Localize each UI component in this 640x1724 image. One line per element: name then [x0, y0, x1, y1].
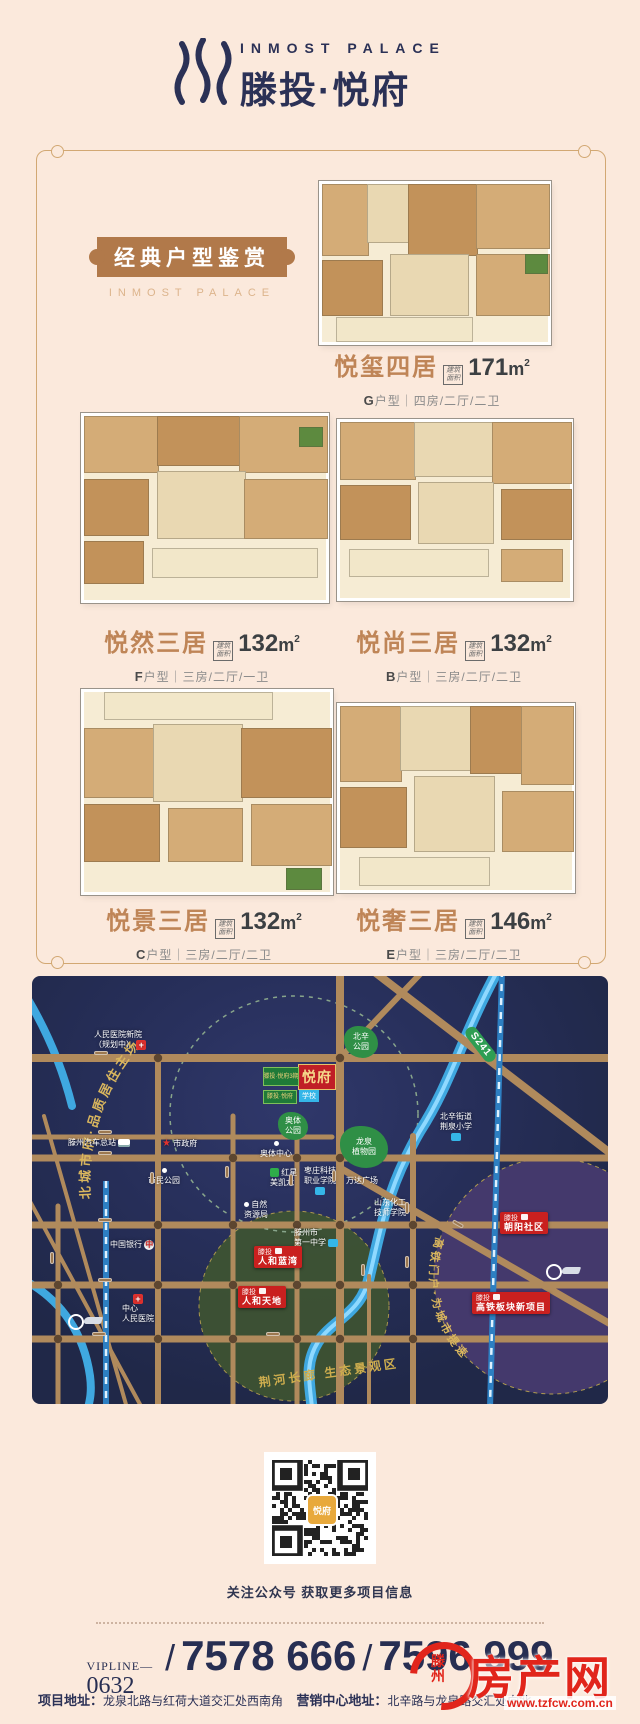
- plan-label-c: 悦景三居 建筑面积 132m2 C户型｜三房/二厅/二卫: [91, 901, 317, 963]
- plan-type: F户型｜三房/二厅/一卫: [89, 668, 315, 685]
- floorplan-room: [418, 482, 494, 544]
- floorplan-room: [340, 485, 411, 540]
- road-label-v-3: [289, 1174, 293, 1186]
- floorplan-room: [501, 549, 563, 583]
- floorplan-room: [414, 776, 495, 852]
- floorplan-room: [521, 706, 574, 785]
- road-label-v-2: [225, 1166, 229, 1178]
- floorplan-room: [152, 548, 319, 578]
- road-label-v-1: [150, 1172, 154, 1184]
- floorplan-room: [153, 724, 244, 802]
- plan-area: 132m2: [240, 908, 302, 936]
- road-label-v-7: [405, 1256, 409, 1268]
- floorplan-room: [359, 857, 491, 887]
- floorplan-image-e: [337, 703, 575, 893]
- slash: /: [356, 1637, 378, 1679]
- floorplan-room: [476, 184, 550, 249]
- plan-name: 悦尚三居: [356, 623, 460, 658]
- map-poi-13: +中心人民医院: [122, 1294, 154, 1324]
- plan-label-e: 悦奢三居 建筑面积 146m2 E户型｜三房/二厅/二卫: [341, 901, 567, 963]
- floorplan-room: [470, 706, 523, 774]
- floorplan-room: [501, 489, 572, 540]
- map-poi-0: 人民医院新院（规划中） +: [94, 1030, 146, 1050]
- footer-divider: [96, 1622, 544, 1624]
- watermark-url: www.tzfcw.com.cn: [504, 1696, 616, 1710]
- brand-logo-icon: [170, 38, 236, 108]
- section-badge: 经典户型鉴赏: [97, 237, 287, 277]
- brand-en: INMOST PALACE: [240, 40, 446, 56]
- watermark-city: 滕州: [430, 1654, 446, 1684]
- plan-area: 146m2: [490, 908, 552, 936]
- floorplan-section: 经典户型鉴赏 INMOST PALACE 悦玺四居 建筑面积 171m2 G户型…: [36, 150, 606, 964]
- floorplan-room: [322, 184, 369, 256]
- site-watermark: 滕州 房产网 www.tzfcw.com.cn: [408, 1636, 640, 1716]
- floorplan-room: [349, 549, 489, 577]
- qr-code: 悦府: [264, 1452, 376, 1564]
- floorplan-room: [84, 804, 160, 862]
- park-2: 奥体公园: [278, 1112, 308, 1140]
- floorplan-room: [84, 541, 144, 583]
- floorplan-room: [525, 254, 547, 275]
- floorplan-room: [168, 808, 244, 862]
- plan-area: 132m2: [238, 630, 300, 658]
- floorplan-room: [390, 254, 469, 316]
- qr-caption: 关注公众号 获取更多项目信息: [0, 1582, 640, 1601]
- area-badge: 建筑面积: [443, 365, 463, 385]
- map-poi-1: 滕州汽车总站: [68, 1138, 130, 1148]
- plan-label-b: 悦尚三居 建筑面积 132m2 B户型｜三房/二厅/二卫: [341, 623, 567, 685]
- floorplan-room: [157, 471, 246, 539]
- floorplan-room: [241, 728, 332, 798]
- plan-type: G户型｜四房/二厅/二卫: [319, 392, 545, 409]
- road-label-v-6: [361, 1264, 365, 1276]
- section-badge-sub: INMOST PALACE: [97, 287, 287, 299]
- plan-area: 132m2: [490, 630, 552, 658]
- road-label-v-4: [332, 1170, 336, 1182]
- map-poi-11: 山东化工技师学院: [374, 1198, 406, 1218]
- floorplan-room: [340, 422, 416, 480]
- floorplan-room: [322, 260, 383, 316]
- road-label-v-0: [50, 1252, 54, 1264]
- floorplan-room: [340, 706, 402, 782]
- red-marker-3: 滕投高铁板块新项目: [472, 1292, 550, 1314]
- plan-name: 悦景三居: [106, 901, 210, 936]
- floorplan-room: [414, 422, 494, 477]
- floorplan-room: [244, 479, 328, 540]
- floorplan-room: [251, 804, 332, 866]
- floorplan-image-f: [81, 413, 329, 603]
- plan-type: B户型｜三房/二厅/二卫: [341, 668, 567, 685]
- project-address: 龙泉北路与红荷大道交汇处西南角: [103, 1694, 283, 1708]
- red-marker-2: 滕投朝阳社区: [500, 1212, 548, 1234]
- floorplan-image-c: [81, 689, 333, 895]
- plan-name: 悦奢三居: [356, 901, 460, 936]
- floorplan-room: [104, 692, 273, 720]
- map-poi-12: 北辛街道荆泉小学: [440, 1112, 472, 1142]
- plan-name: 悦玺四居: [334, 347, 438, 382]
- header: INMOST PALACE 滕投·悦府: [0, 0, 640, 150]
- map-poi-5: 红星美凯龙: [270, 1168, 297, 1188]
- floorplan-room: [286, 868, 322, 890]
- vipline-label: VIPLINE—: [86, 1659, 153, 1674]
- qr-center-logo: 悦府: [306, 1494, 338, 1526]
- area-badge: 建筑面积: [215, 919, 235, 939]
- phone-number-1: 7578 666: [181, 1632, 356, 1680]
- plan-area: 171m2: [468, 354, 530, 382]
- floorplan-room: [492, 422, 572, 484]
- road-label-4: [98, 1278, 112, 1282]
- road-label-5: [92, 1332, 106, 1336]
- red-marker-1: 滕投人和天地: [238, 1286, 286, 1308]
- floorplan-room: [336, 317, 474, 343]
- floorplan-room: [502, 791, 574, 852]
- road-label-6: [266, 1332, 280, 1336]
- area-badge: 建筑面积: [465, 919, 485, 939]
- plan-type: E户型｜三房/二厅/二卫: [341, 946, 567, 963]
- sales-address-label: 营销中心地址：: [296, 1693, 387, 1708]
- road-label-0: [94, 1051, 108, 1055]
- map-poi-10: 万达广场: [346, 1176, 378, 1186]
- plan-name: 悦然三居: [104, 623, 208, 658]
- project-address-label: 项目地址：: [38, 1693, 103, 1708]
- road-label-3: [98, 1218, 112, 1222]
- area-badge: 建筑面积: [213, 641, 233, 661]
- floorplan-room: [84, 728, 155, 798]
- floorplan-room: [340, 787, 407, 848]
- red-marker-0: 滕投人和蓝湾: [254, 1246, 302, 1268]
- project-marker-phase3: 滕投·悦府3期: [263, 1067, 299, 1086]
- floorplan-room: [400, 706, 472, 771]
- project-marker-yuefu: 悦府: [298, 1064, 336, 1090]
- area-badge: 建筑面积: [465, 641, 485, 661]
- map-poi-2: ★ 市政府: [162, 1139, 197, 1149]
- floorplan-room: [299, 427, 323, 447]
- location-map: 北城市府·品质居住主场 高铁门户·为城市提速 人民医院新院（规划中） +滕州汽车…: [32, 976, 608, 1404]
- floorplan-image-b: [337, 419, 573, 601]
- plan-label-f: 悦然三居 建筑面积 132m2 F户型｜三房/二厅/一卫: [89, 623, 315, 685]
- floorplan-room: [408, 184, 478, 256]
- map-poi-4: 奥体中心: [260, 1139, 292, 1159]
- map-poi-8: 中国银行 中: [110, 1240, 154, 1250]
- floorplan-room: [84, 479, 149, 536]
- road-label-1: [98, 1130, 112, 1134]
- project-marker-sub: 滕投·悦府: [263, 1090, 297, 1104]
- floorplan-room: [367, 184, 410, 243]
- brand-cn: 滕投·悦府: [240, 60, 446, 114]
- road-label-v-5: [405, 1202, 409, 1214]
- plan-label-g: 悦玺四居 建筑面积 171m2 G户型｜四房/二厅/二卫: [319, 347, 545, 409]
- project-school-marker: 学校: [299, 1090, 319, 1102]
- map-poi-7: 自然资源局: [244, 1200, 268, 1220]
- train-icon-0: [68, 1314, 102, 1328]
- slash: /: [159, 1637, 181, 1679]
- road-label-2: [98, 1151, 112, 1155]
- train-icon-1: [546, 1264, 580, 1278]
- park-0: 北辛公园: [344, 1026, 378, 1058]
- plan-type: C户型｜三房/二厅/二卫: [91, 946, 317, 963]
- floorplan-image-g: [319, 181, 551, 345]
- floorplan-room: [84, 416, 159, 473]
- map-poi-9: 滕州市第一中学: [294, 1228, 338, 1248]
- floorplan-room: [157, 416, 241, 466]
